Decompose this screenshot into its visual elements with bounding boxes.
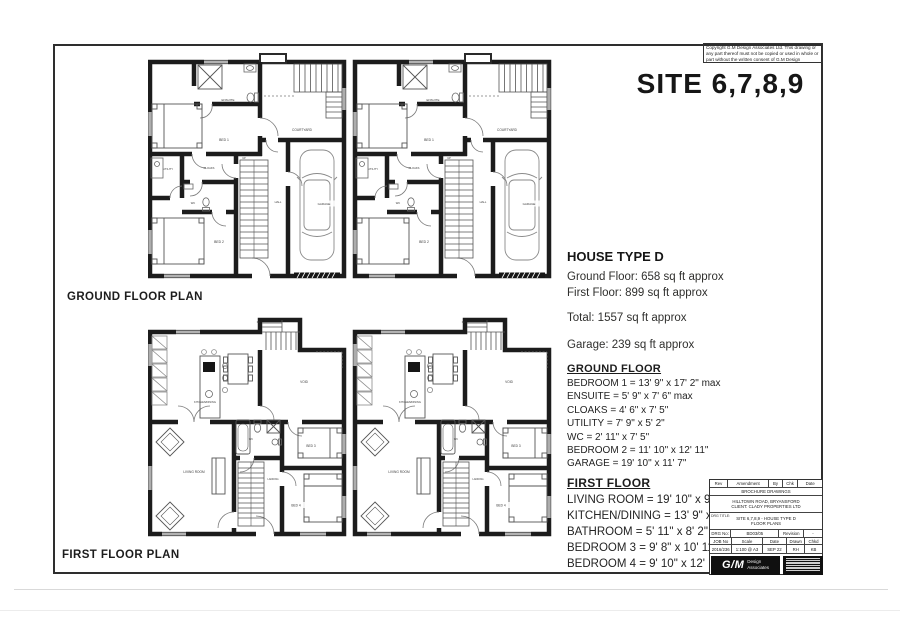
drawn-value: RH: [787, 545, 805, 553]
first-floor-plan: Dn: [148, 316, 552, 546]
ground-floor-dimensions-list: BEDROOM 1 = 13' 9" x 17' 2" max ENSUITE …: [567, 377, 720, 471]
rev-col-header: Rev: [710, 480, 728, 487]
scale-label: Scale: [732, 538, 762, 544]
chk-col-header: Chk: [783, 480, 799, 487]
site-title: SITE 6,7,8,9: [618, 68, 823, 100]
dimension-item: WC = 2' 11" x 7' 5": [567, 431, 720, 444]
drawn-label: Drawn: [787, 538, 805, 544]
date-value: SEP 22: [763, 545, 788, 553]
date-col-header: Date: [798, 480, 822, 487]
company-address-block: [783, 556, 823, 575]
first-floor-caption: FIRST FLOOR PLAN: [62, 549, 180, 561]
dimension-item: CLOAKS = 4' 6" x 7' 5": [567, 404, 720, 417]
garage-area: Garage: 239 sq ft approx: [567, 339, 694, 351]
ground-floor-caption: GROUND FLOOR PLAN: [67, 291, 203, 303]
drg-title-label: DRG TITLE:: [711, 514, 730, 518]
job-header-row: JOB No Scale Date Drawn Chkd: [710, 538, 822, 545]
dimension-item: BEDROOM 1 = 13' 9" x 17' 2" max: [567, 377, 720, 390]
dimension-item: GARAGE = 19' 10" x 11' 7": [567, 457, 720, 470]
drg-no-label: DRG No:: [710, 530, 731, 537]
first-floor-area: First Floor: 899 sq ft approx: [567, 287, 708, 299]
scale-value: 1:100 @ A3: [732, 545, 762, 553]
dimension-item: BEDROOM 2 = 11' 10" x 12' 11": [567, 444, 720, 457]
revision-value: -: [804, 530, 822, 537]
drg-title-line2: FLOOR PLANS: [751, 521, 781, 526]
job-no-value: 2016/236: [710, 545, 732, 553]
ground-floor-plan: ENSUITE BED 1 COURTYARD UTILITY CLOAKS W…: [148, 52, 552, 288]
copyright-notice: Copyright G.M Design Associates Ltd. Thi…: [703, 43, 823, 63]
logo-row: G/M Design Associates: [710, 554, 822, 576]
dimension-item: UTILITY = 7' 9" x 5' 2": [567, 417, 720, 430]
revision-label: Revision: [779, 530, 804, 537]
total-area: Total: 1557 sq ft approx: [567, 312, 687, 324]
scan-artifact-line: [0, 610, 900, 611]
amendment-col-header: Amendment: [728, 480, 769, 487]
date-label: Date: [763, 538, 788, 544]
logo-word-associates: Associates: [747, 565, 769, 571]
drg-no-row: DRG No: BD03/05 Revision -: [710, 530, 822, 538]
logo-gm-monogram: G/M: [722, 559, 744, 571]
job-no-label: JOB No: [710, 538, 732, 544]
scan-artifact-line: [14, 589, 888, 590]
chkd-value: KB: [805, 545, 822, 553]
first-floor-list-heading: FIRST FLOOR: [567, 476, 650, 490]
dimension-item: ENSUITE = 5' 9" x 7' 6" max: [567, 390, 720, 403]
client-name: CLIENT: CLADY PROPERTIES LTD: [731, 504, 800, 509]
drg-title-row: DRG TITLE: SITE 6,7,8,9 - HOUSE TYPE D F…: [710, 513, 822, 530]
by-col-header: By: [769, 480, 782, 487]
company-logo: G/M Design Associates: [711, 556, 780, 575]
drg-no-value: BD03/05: [731, 530, 779, 537]
title-block: Rev Amendment By Chk Date BROCHURE DRAWI…: [709, 479, 823, 575]
ground-floor-list-heading: GROUND FLOOR: [567, 363, 661, 375]
project-row: HILLTOWN ROAD, BRYANSFORD CLIENT: CLADY …: [710, 496, 822, 513]
drawing-status-row: BROCHURE DRAWINGS: [710, 488, 822, 496]
revision-header-row: Rev Amendment By Chk Date: [710, 480, 822, 488]
drawing-sheet: Copyright G.M Design Associates Ltd. Thi…: [0, 0, 900, 635]
job-values-row: 2016/236 1:100 @ A3 SEP 22 RH KB: [710, 545, 822, 554]
house-type-heading: HOUSE TYPE D: [567, 249, 664, 264]
ground-floor-area: Ground Floor: 658 sq ft approx: [567, 271, 724, 283]
drawing-status: BROCHURE DRAWINGS: [710, 488, 822, 495]
chkd-label: Chkd: [805, 538, 822, 544]
